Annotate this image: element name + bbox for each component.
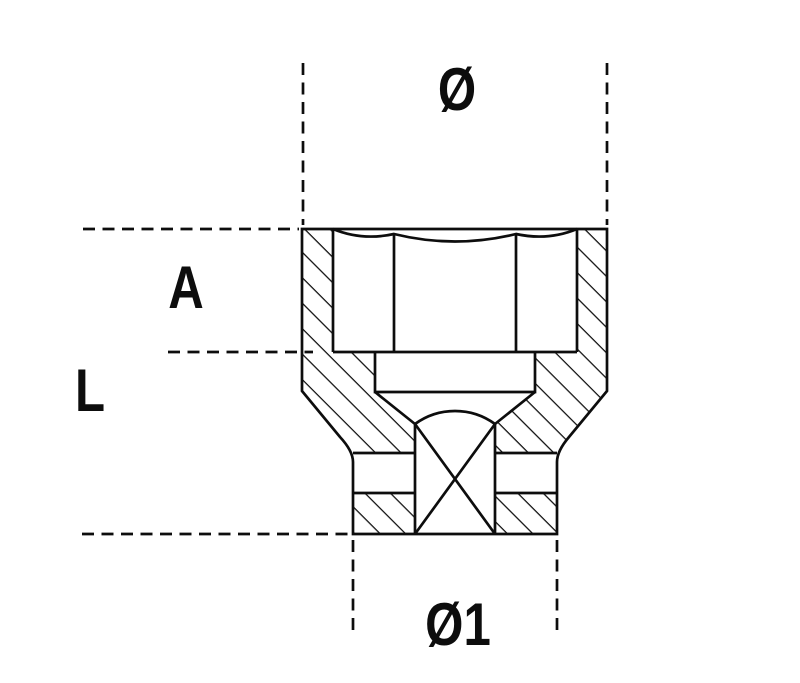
label-head-depth: A [168, 253, 204, 321]
square-drive-diagonals [415, 424, 495, 534]
hex-recess-chamfer-arcs [333, 229, 577, 242]
label-overall-length: L [75, 356, 105, 424]
square-drive-crown-arc [415, 411, 495, 424]
ball-detent-hole-right [495, 453, 557, 493]
socket-cross-section-drawing: Ø A L Ø1 [0, 0, 800, 683]
intermediate-bore-outline [375, 352, 535, 392]
drawing-canvas: Ø A L Ø1 [0, 0, 800, 683]
label-drive-diameter: Ø1 [425, 590, 491, 658]
hex-recess-edges [333, 229, 577, 352]
section-hatching [302, 229, 607, 534]
label-outer-diameter: Ø [438, 55, 476, 123]
ball-detent-hole-left [353, 453, 415, 493]
